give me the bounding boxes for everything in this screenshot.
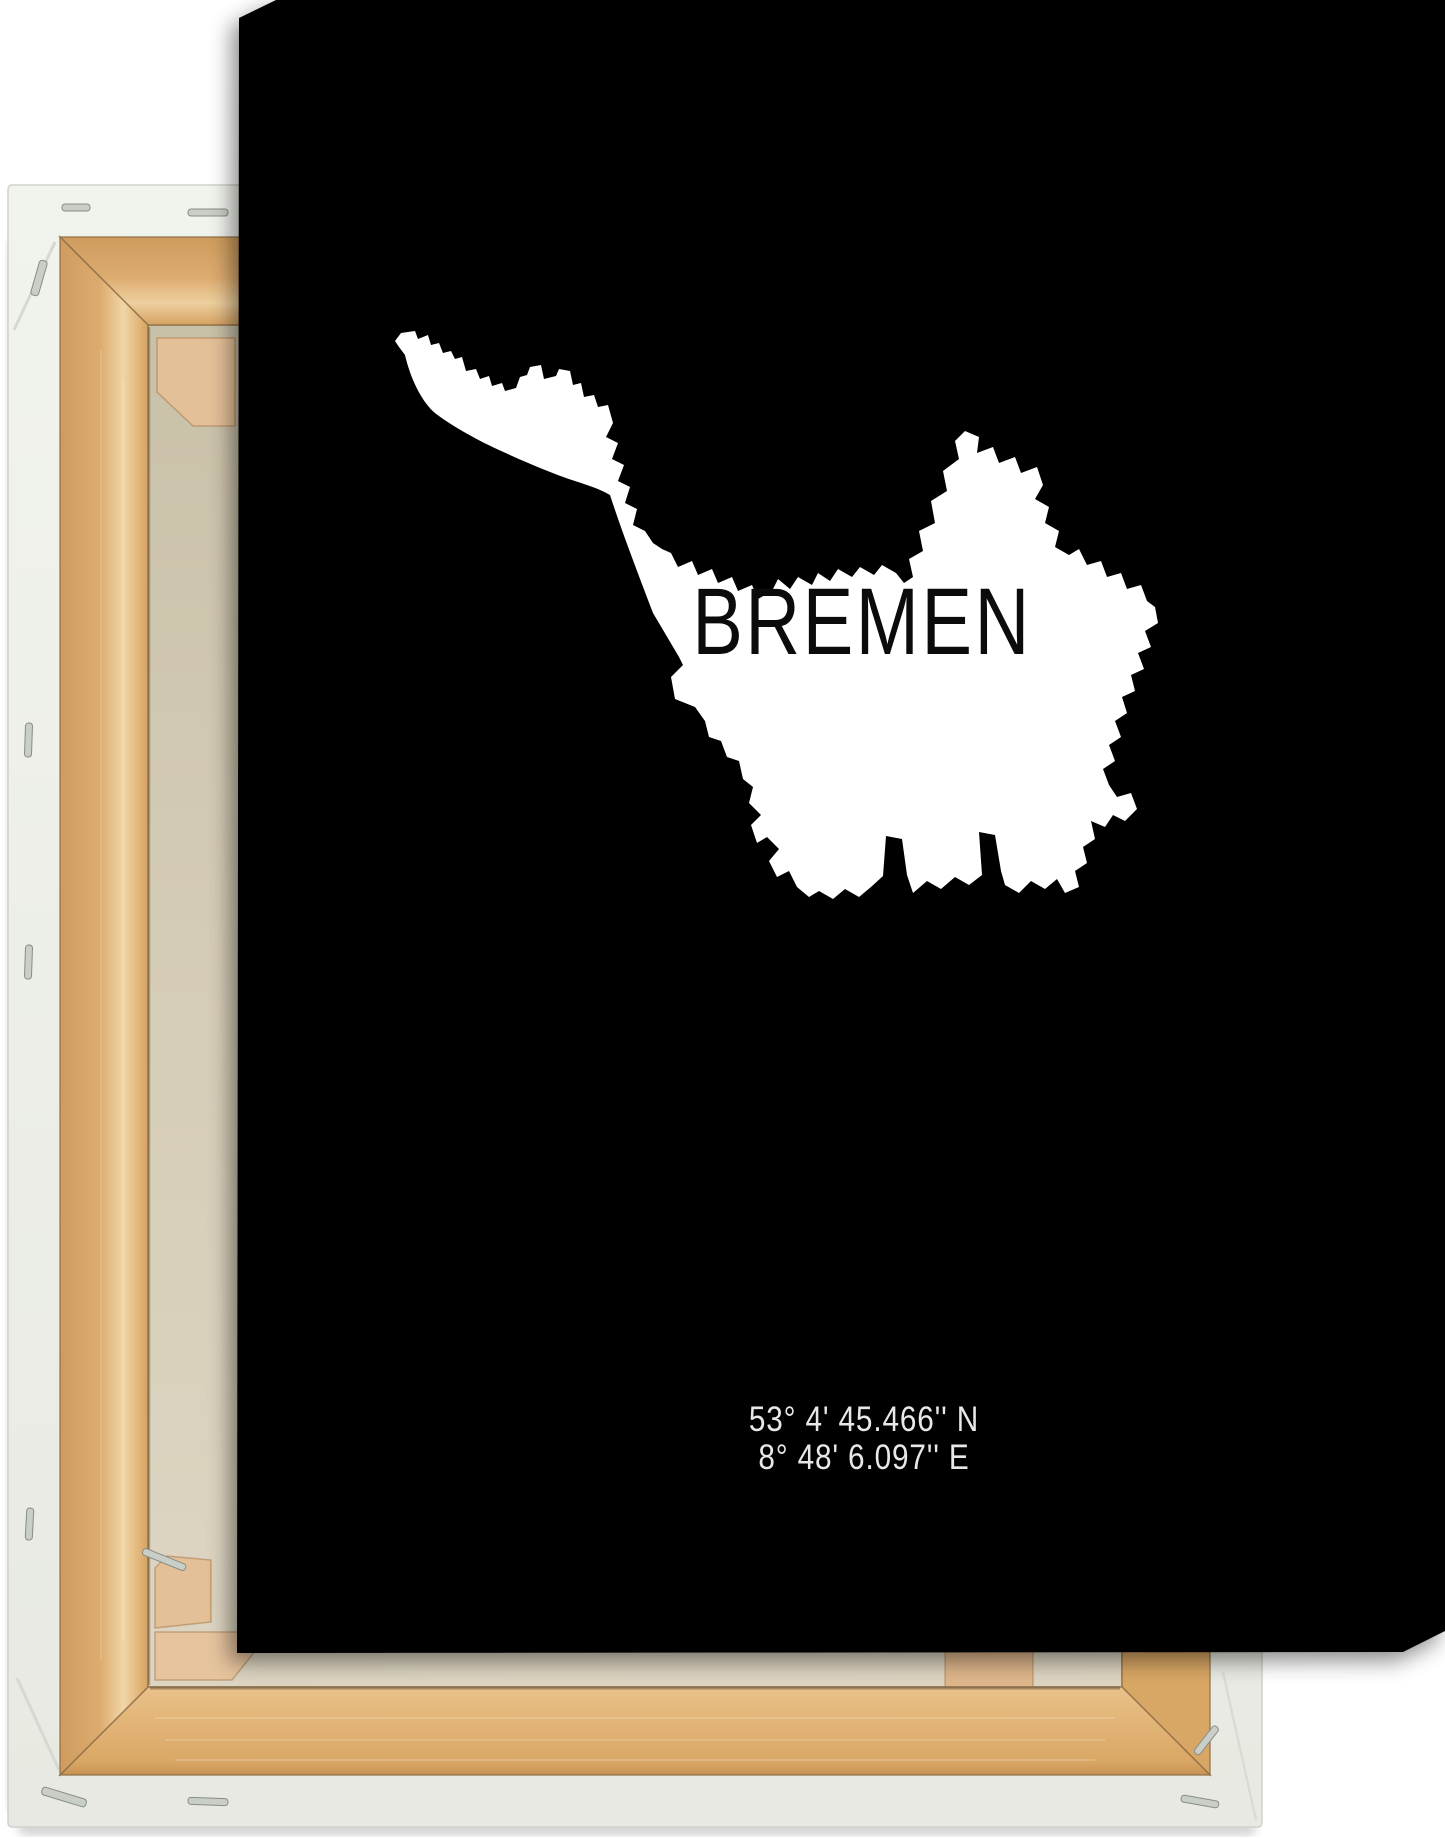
poster-coordinates: 53° 4' 45.466'' N 8° 48' 6.097'' E: [749, 1401, 979, 1477]
stretcher-bar-left: [60, 237, 148, 1775]
product-photo: BREMEN 53° 4' 45.466'' N 8° 48' 6.097'' …: [0, 0, 1445, 1839]
staple: [188, 1797, 228, 1805]
staple: [62, 204, 90, 211]
coordinate-longitude: 8° 48' 6.097'' E: [749, 1439, 979, 1477]
poster-front: BREMEN 53° 4' 45.466'' N 8° 48' 6.097'' …: [237, 0, 1445, 1653]
staple: [24, 723, 32, 757]
coordinate-latitude: 53° 4' 45.466'' N: [749, 1401, 979, 1439]
staple: [24, 945, 32, 979]
staple: [188, 209, 228, 216]
staple: [25, 1508, 34, 1540]
poster-canvas: BREMEN 53° 4' 45.466'' N 8° 48' 6.097'' …: [237, 0, 1445, 1653]
stretcher-bar-bottom: [60, 1687, 1210, 1775]
poster-title: BREMEN: [692, 575, 1032, 670]
